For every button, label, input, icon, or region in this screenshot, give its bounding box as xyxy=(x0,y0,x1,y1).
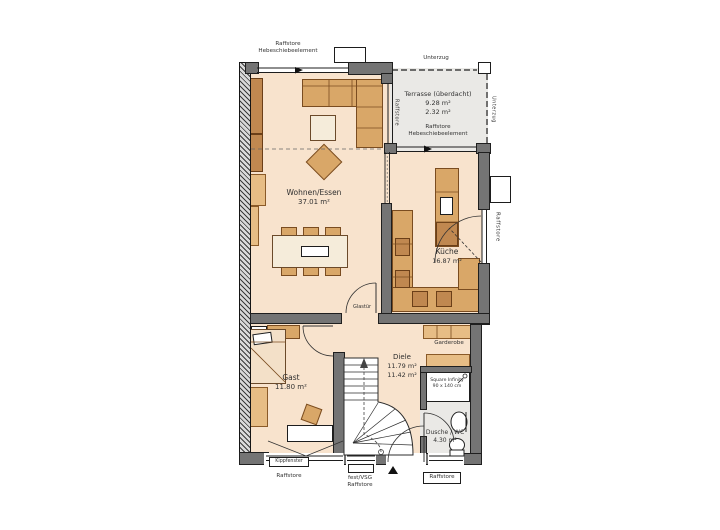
exterior-wall-left xyxy=(239,62,251,464)
room-area-wohnen: 37.01 m² xyxy=(269,199,359,207)
room-label-dusche: Dusche / WC xyxy=(419,430,471,437)
coffee-table xyxy=(310,115,336,141)
entrance-arrow-icon xyxy=(388,466,398,474)
wall-partition-living-kitchen xyxy=(381,203,392,315)
room-label-diele: Diele xyxy=(379,354,425,362)
room-label-wohnen: Wohnen/Essen xyxy=(269,189,359,197)
guest-desk xyxy=(287,425,333,442)
guest-cabinet xyxy=(249,387,268,427)
sill-box-stair xyxy=(348,464,374,473)
room-area-terrasse-2: 2.32 m² xyxy=(395,109,481,116)
dining-table-inset xyxy=(301,246,329,257)
sideboard-2 xyxy=(249,134,263,172)
room-label-terrasse: Terrasse (überdacht) xyxy=(395,91,481,98)
wall-partition-top xyxy=(381,73,393,84)
wall-living-south xyxy=(250,313,342,324)
window-kitchen-east xyxy=(482,210,487,263)
wall-kitchen-south xyxy=(378,313,490,324)
kitchen-appliance xyxy=(436,291,452,307)
label-hebeschiebe-terrace: Hebeschiebeelement xyxy=(395,131,481,137)
chimney-block xyxy=(334,47,366,63)
label-raffstore-terrace: Raffstore xyxy=(395,124,481,130)
sideboard-1 xyxy=(249,78,263,134)
wardrobe-upper xyxy=(423,325,472,339)
label-fest-vsg: fest/VSG xyxy=(338,475,382,481)
label-raffstore-kitchen-window: Raffstore xyxy=(494,212,500,256)
kitchen-sink xyxy=(440,197,453,215)
kitchen-appliance xyxy=(395,270,410,288)
kitchen-appliance xyxy=(412,291,428,307)
label-raffstore-gast: Raffstore xyxy=(269,473,309,479)
floorplan-canvas: Raffstore Hebeschiebeelement Unterzug Un… xyxy=(0,0,720,530)
room-area-diele-1: 11.79 m² xyxy=(379,363,425,370)
wall-guest-hall xyxy=(333,352,345,464)
label-hebeschiebe-top: Hebeschiebeelement xyxy=(253,48,323,54)
entrance-door-opening xyxy=(386,453,426,465)
label-unterzug-top: Unterzug xyxy=(408,55,464,61)
label-kippfenster: Kippfenster xyxy=(269,459,309,464)
window-wc xyxy=(428,453,464,465)
wall-post-terrace-left xyxy=(384,143,397,154)
cabinet-left-1 xyxy=(249,174,266,206)
kitchen-island-lower xyxy=(436,222,458,246)
kitchen-appliance xyxy=(395,238,410,256)
room-area-dusche: 4.30 m² xyxy=(419,438,471,445)
room-area-kueche: 16.87 m² xyxy=(421,258,473,265)
room-label-gast: Gast xyxy=(268,374,314,382)
wall-wc-top xyxy=(420,366,472,373)
terrace-column xyxy=(478,62,491,74)
downpipe-box xyxy=(490,176,511,203)
label-unterzug-right: Unterzug xyxy=(490,96,496,136)
label-shower-size: 90 x 140 cm xyxy=(426,384,468,389)
label-glastuer: Glastür xyxy=(347,305,377,311)
sofa-vertical xyxy=(356,79,383,148)
room-label-kueche: Küche xyxy=(421,248,473,256)
label-shower-model: Square Infinity xyxy=(426,378,468,383)
label-raffstore-wc: Raffstore xyxy=(423,474,461,480)
label-raffstore-top: Raffstore xyxy=(253,41,323,47)
room-area-terrasse-1: 9.28 m² xyxy=(395,100,481,107)
room-area-gast: 11.80 m² xyxy=(268,384,314,392)
label-garderobe: Garderobe xyxy=(427,340,471,346)
room-area-diele-2: 11.42 m² xyxy=(379,372,425,379)
label-fest-vsg-raffstore: Raffstore xyxy=(338,482,382,488)
exterior-wall-kitchen-upper xyxy=(478,152,490,210)
wall-corner-top-left xyxy=(245,62,259,74)
exterior-wall-right-lower xyxy=(470,324,482,464)
